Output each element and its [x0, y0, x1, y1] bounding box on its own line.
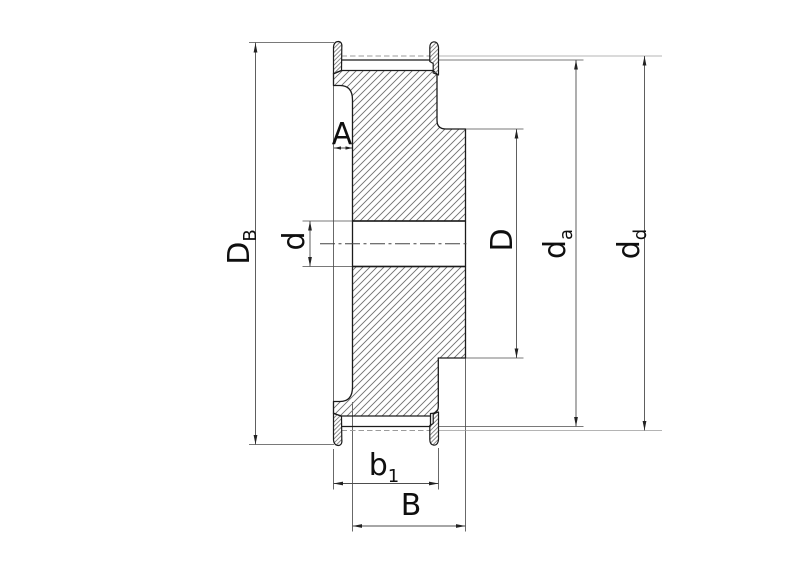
pulley-technical-drawing: DB d A D da dd b1 B — [0, 0, 800, 565]
lower-body-section — [334, 267, 466, 417]
drawing-canvas — [0, 0, 800, 565]
pulley-body — [334, 71, 466, 417]
arrow-da-down — [574, 417, 578, 427]
arrow-da-up — [574, 60, 578, 70]
flange-bottom-left — [334, 413, 342, 446]
arrow-dd-up — [643, 56, 647, 66]
arrow-D-up — [515, 129, 519, 139]
arrow-B-left — [353, 524, 363, 528]
arrow-b1-left — [334, 482, 344, 486]
upper-body-section — [334, 71, 466, 222]
flange-top-left — [334, 42, 342, 75]
arrow-d-up — [308, 221, 312, 231]
arrow-d-down — [308, 257, 312, 267]
arrow-b1-right — [429, 482, 439, 486]
arrow-A-left — [334, 146, 341, 149]
pitch-extension-lines — [439, 56, 663, 431]
arrow-DB-up — [254, 43, 258, 53]
arrow-B-right — [456, 524, 466, 528]
arrow-D-down — [515, 349, 519, 359]
arrow-A-right — [346, 146, 353, 149]
arrow-dd-down — [643, 421, 647, 431]
arrow-DB-down — [254, 435, 258, 445]
